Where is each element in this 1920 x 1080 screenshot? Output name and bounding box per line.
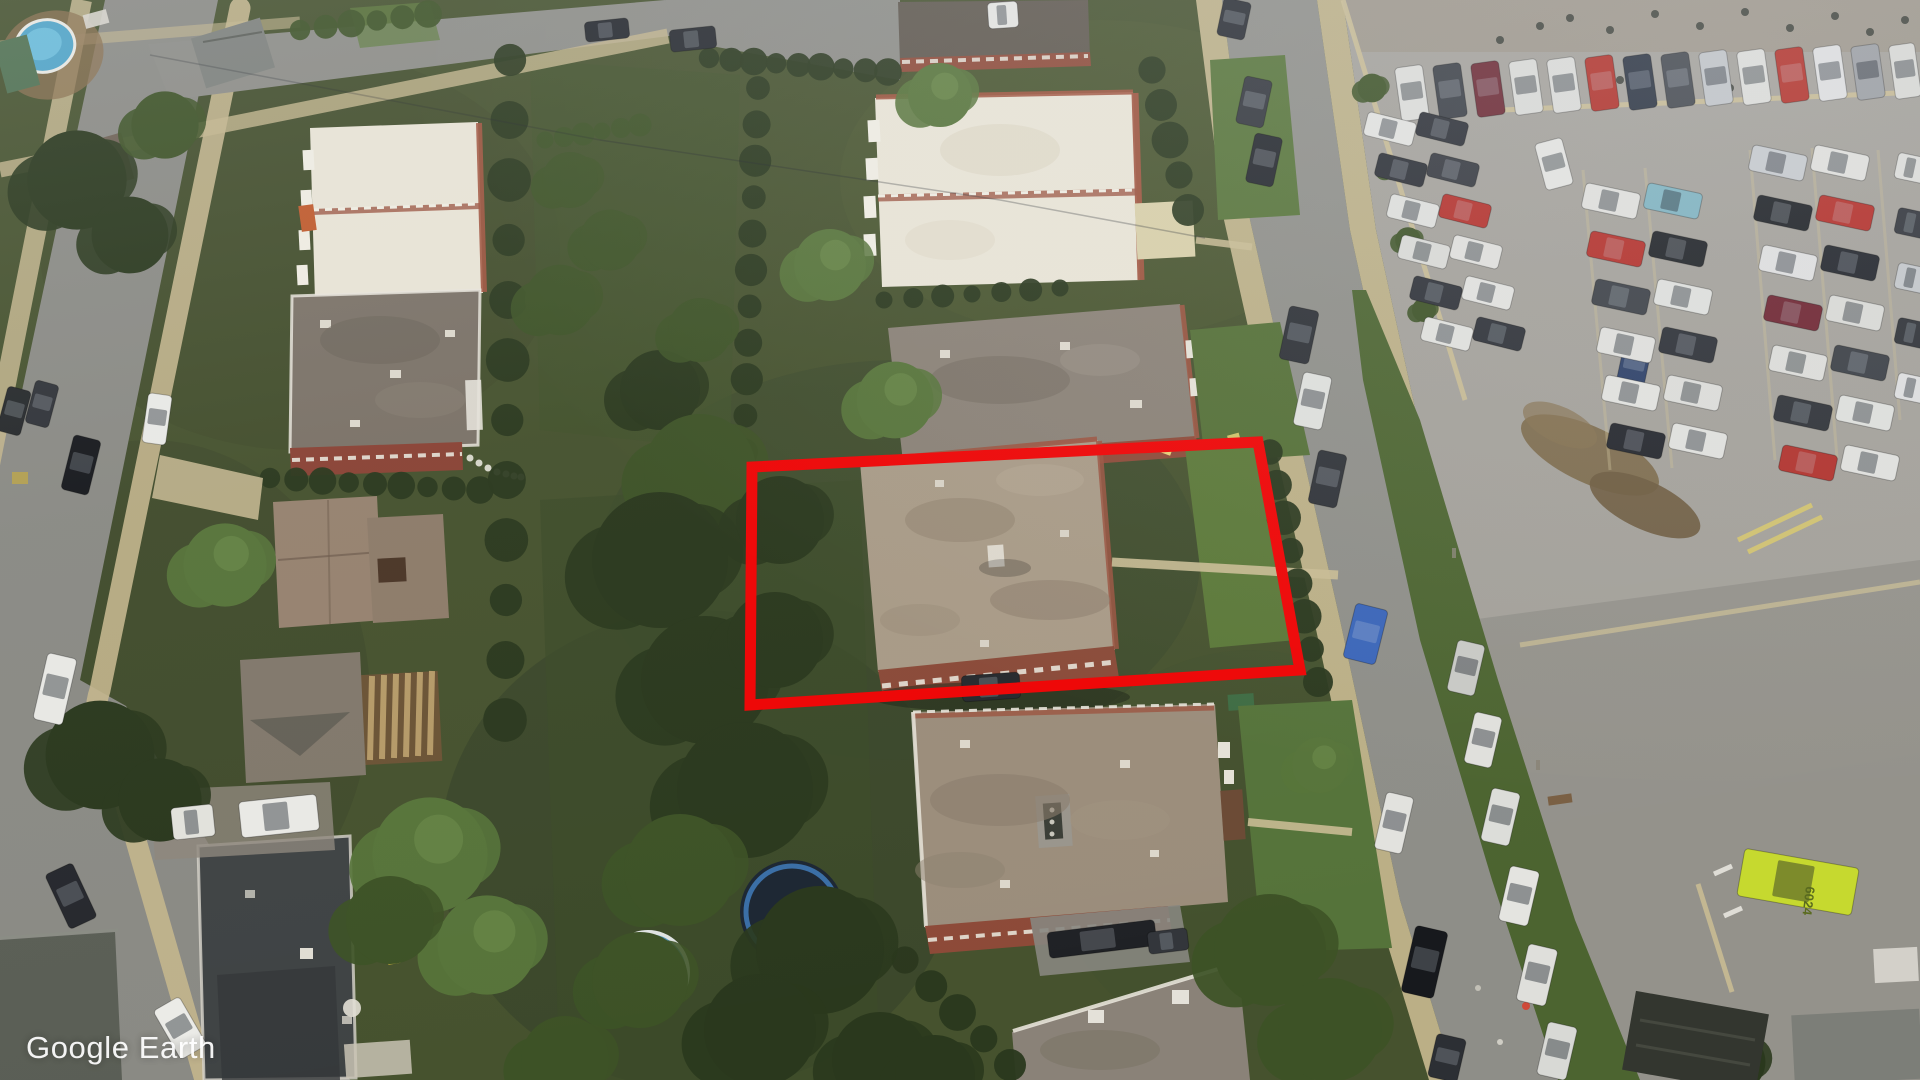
google-earth-viewport: 6024 Google Earth: [0, 0, 1920, 1080]
corner-haze: [0, 0, 1920, 1080]
satellite-imagery-canvas[interactable]: 6024: [0, 0, 1920, 1080]
google-earth-watermark: Google Earth: [26, 1030, 216, 1066]
